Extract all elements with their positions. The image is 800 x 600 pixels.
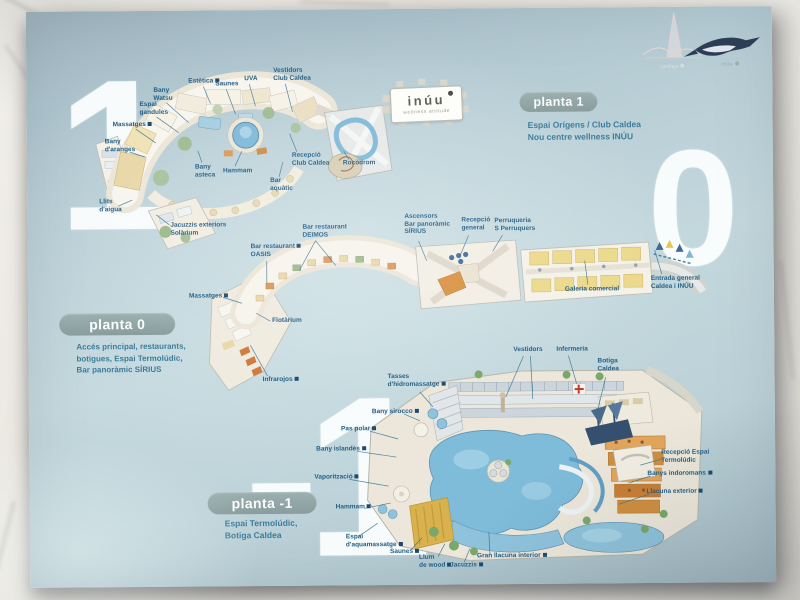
label-code-icon: [479, 562, 483, 566]
label-code-icon: [399, 542, 403, 546]
map-label: Bany sirocco: [372, 408, 419, 416]
map-label: Tassesd'hidromassatge: [388, 373, 446, 389]
label-code-icon: [372, 426, 376, 430]
label-code-icon: [362, 446, 366, 450]
label-code-icon: [441, 381, 445, 385]
map-label: Pas polar: [341, 425, 376, 433]
label-code-icon: [415, 549, 419, 553]
label-code-icon: [367, 504, 371, 508]
map-label: Espaid'aquamassatge: [346, 533, 403, 549]
map-label: Llumde wood: [419, 554, 451, 570]
map-label: Hammam: [336, 503, 371, 511]
map-label: Jacuzzis: [450, 561, 483, 569]
label-code-icon: [355, 474, 359, 478]
map-label: BotigaCaldea: [597, 357, 618, 372]
planta-minus1-labels: VestidorsInfermeriaBotigaCaldeaTassesd'h…: [0, 0, 800, 600]
map-label: Gran llacuna interior: [477, 552, 547, 560]
label-code-icon: [708, 471, 712, 475]
map-label: Infermeria: [556, 346, 587, 354]
map-label: Banys indoromans: [647, 470, 712, 478]
poster: 1 0 -1: [0, 0, 800, 600]
map-label: Bany islandès: [316, 445, 366, 453]
map-label: Vestidors: [513, 346, 542, 354]
label-code-icon: [699, 489, 703, 493]
label-code-icon: [415, 409, 419, 413]
label-code-icon: [543, 553, 547, 557]
map-label: Llacuna exterior: [646, 488, 702, 496]
map-label: Saunes: [390, 548, 419, 556]
map-label: Vaporització: [314, 473, 358, 481]
wall-background: 1 0 -1: [0, 0, 800, 600]
map-label: Recepció EspaiTermolúdic: [661, 449, 709, 465]
